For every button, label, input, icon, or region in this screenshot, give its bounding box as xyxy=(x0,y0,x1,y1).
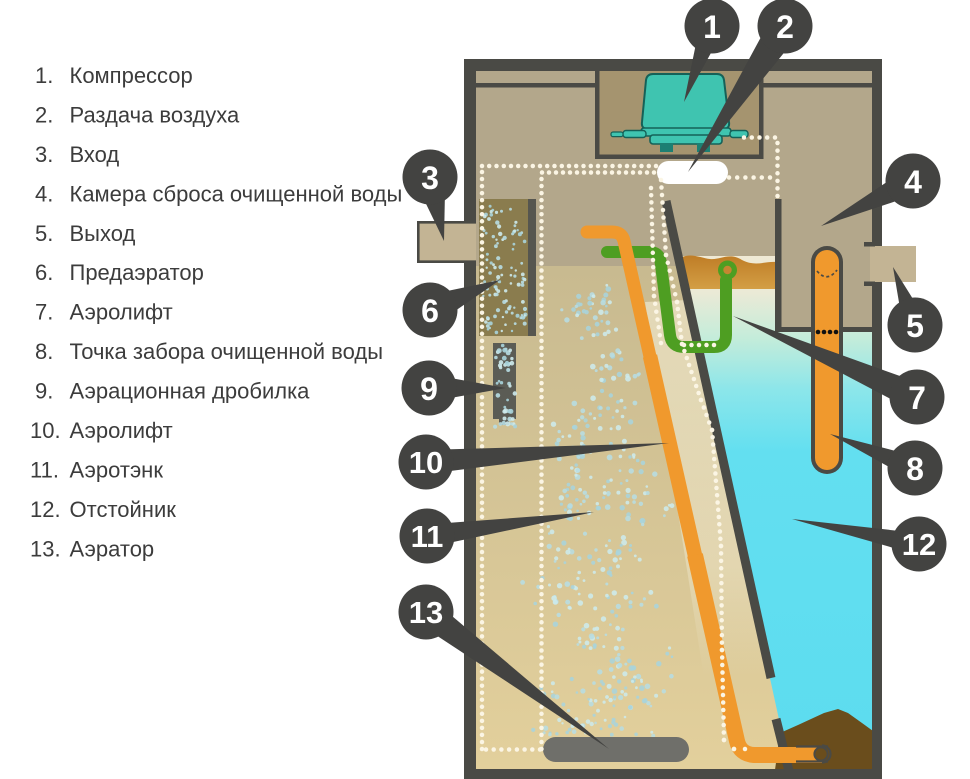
svg-text:Аэролифт: Аэролифт xyxy=(70,418,173,443)
svg-text:9: 9 xyxy=(420,371,438,407)
svg-text:3: 3 xyxy=(421,160,439,196)
svg-text:11.: 11. xyxy=(30,458,59,483)
svg-text:11: 11 xyxy=(411,519,444,554)
svg-text:Точка забора очищенной воды: Точка забора очищенной воды xyxy=(70,339,384,364)
svg-text:12.: 12. xyxy=(30,497,61,522)
svg-text:8: 8 xyxy=(906,451,924,487)
svg-text:Аэротэнк: Аэротэнк xyxy=(70,458,164,483)
svg-text:1: 1 xyxy=(703,9,721,45)
svg-text:6: 6 xyxy=(421,293,439,329)
svg-text:13.: 13. xyxy=(30,536,61,561)
svg-text:12: 12 xyxy=(902,527,936,562)
svg-text:5.: 5. xyxy=(35,221,53,246)
svg-text:10: 10 xyxy=(409,445,443,480)
svg-text:4: 4 xyxy=(904,164,922,200)
svg-text:2: 2 xyxy=(776,9,794,45)
svg-text:Аэрационная дробилка: Аэрационная дробилка xyxy=(70,379,311,404)
svg-text:3.: 3. xyxy=(35,142,53,167)
svg-text:Отстойник: Отстойник xyxy=(70,497,177,522)
svg-text:10.: 10. xyxy=(30,418,61,443)
svg-text:13: 13 xyxy=(409,595,443,630)
svg-text:6.: 6. xyxy=(35,260,53,285)
svg-text:Аэратор: Аэратор xyxy=(70,536,155,561)
svg-text:9.: 9. xyxy=(35,379,53,404)
svg-text:Выход: Выход xyxy=(70,221,136,246)
svg-text:2.: 2. xyxy=(35,103,53,128)
svg-text:4.: 4. xyxy=(35,181,53,206)
svg-text:5: 5 xyxy=(906,308,924,344)
svg-text:Камера сброса очищенной воды: Камера сброса очищенной воды xyxy=(70,181,403,206)
svg-text:7: 7 xyxy=(908,380,926,416)
svg-text:Аэролифт: Аэролифт xyxy=(70,300,173,325)
svg-text:Предаэратор: Предаэратор xyxy=(70,260,204,285)
svg-text:Раздача воздуха: Раздача воздуха xyxy=(70,103,241,128)
svg-text:Вход: Вход xyxy=(70,142,120,167)
svg-text:7.: 7. xyxy=(35,300,53,325)
svg-text:8.: 8. xyxy=(35,339,53,364)
svg-text:1.: 1. xyxy=(35,63,53,88)
svg-text:Компрессор: Компрессор xyxy=(70,63,193,88)
